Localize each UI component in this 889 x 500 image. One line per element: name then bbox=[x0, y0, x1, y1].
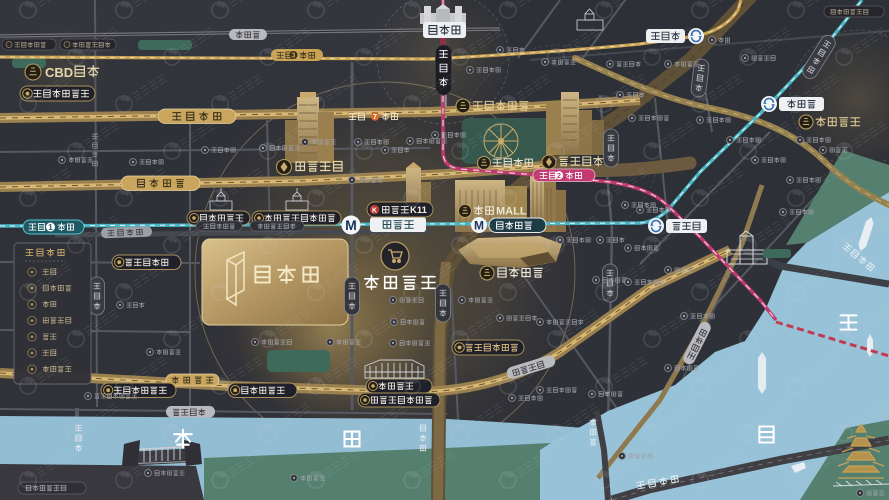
svg-text:CBD: CBD bbox=[45, 65, 73, 80]
svg-text:M: M bbox=[345, 217, 357, 233]
svg-text:2: 2 bbox=[557, 173, 561, 180]
svg-text:K: K bbox=[372, 208, 377, 215]
svg-text:1: 1 bbox=[48, 223, 53, 232]
svg-text:3: 3 bbox=[292, 53, 296, 60]
svg-text:MALL: MALL bbox=[496, 206, 527, 218]
svg-text:7: 7 bbox=[373, 114, 377, 121]
